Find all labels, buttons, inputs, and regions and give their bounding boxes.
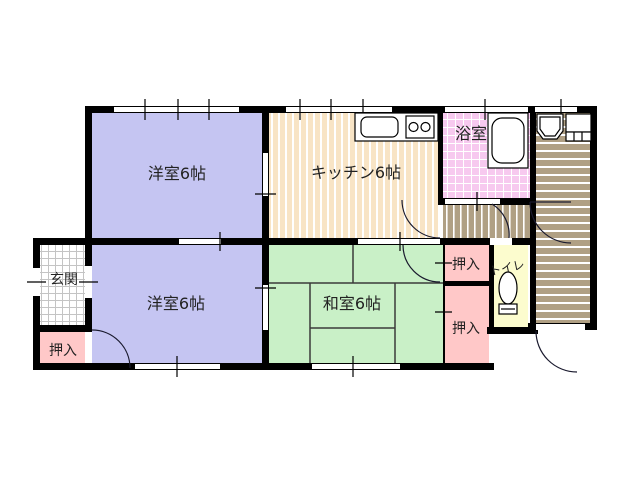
label-western-2: 洋室6帖: [147, 294, 205, 313]
label-oshiire-entry: 押入: [49, 343, 77, 359]
label-oshiire-top: 押入: [452, 257, 480, 273]
label-oshiire-bottom: 押入: [452, 321, 480, 337]
washbasin-icon: [537, 114, 563, 139]
label-genkan: 玄関: [50, 271, 78, 288]
label-bath: 浴室: [455, 124, 487, 143]
room-corridor: [536, 113, 590, 323]
toilet-icon: [499, 272, 517, 314]
label-washitsu: 和室6帖: [323, 294, 381, 313]
label-western-1: 洋室6帖: [148, 164, 206, 183]
room-vestibule: [443, 205, 530, 238]
sink-icon: [361, 117, 398, 137]
floor-plan-canvas: 洋室6帖 キッチン6帖 浴室 洋室6帖 和室6帖 玄関 押入 押入 押入 トイレ: [0, 0, 640, 480]
floor-plan-drawing: 洋室6帖 キッチン6帖 浴室 洋室6帖 和室6帖 玄関 押入 押入 押入 トイレ: [0, 0, 640, 480]
label-kitchen: キッチン6帖: [311, 163, 401, 182]
kitchen-counter: [355, 113, 438, 141]
door-arc-entrance: [536, 331, 577, 372]
bathtub-icon: [488, 113, 528, 168]
washing-machine-icon: [566, 114, 591, 141]
